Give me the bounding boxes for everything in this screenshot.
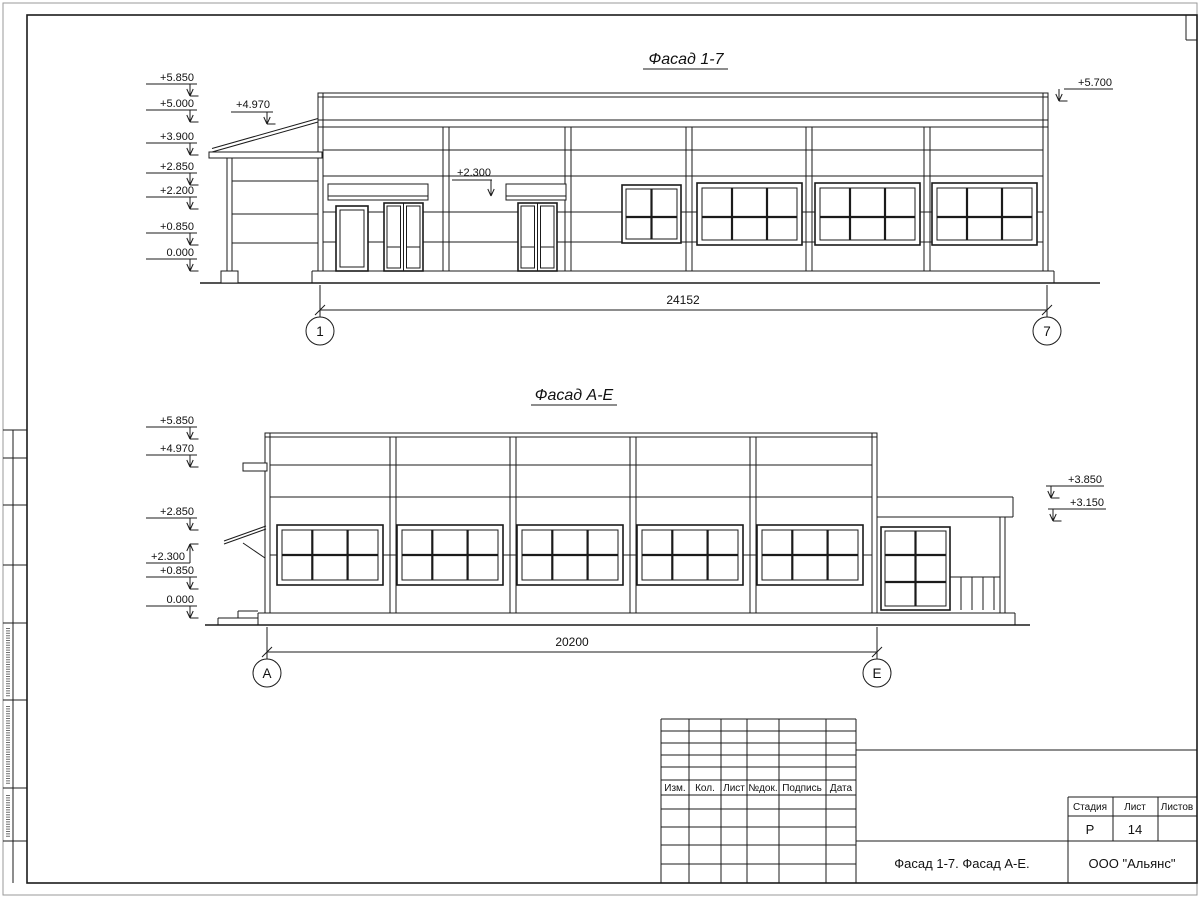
porch-elevation-mark: +4.970 (236, 99, 270, 111)
stage-value: Р (1086, 822, 1095, 837)
window (637, 525, 743, 585)
elevation-mark: +5.850 (160, 72, 194, 84)
facade-a-e-title: Фасад А-Е (535, 387, 614, 404)
facade-a-e: Фасад А-Е (146, 387, 1106, 687)
title-block: Изм. Кол. Лист №док. Подпись Дата Стадия… (661, 719, 1197, 883)
axis-bubble-1: 1 (316, 324, 324, 339)
elevation-marks-a-e: +5.850 +4.970 +2.850 +2.300 +0.850 0.000 (146, 415, 199, 618)
elevation-mark: +4.970 (160, 443, 194, 455)
side-stamp (3, 430, 27, 883)
axis-bubble-e: Е (872, 666, 881, 681)
organization-name: ООО "Альянс" (1089, 856, 1176, 871)
tb-col-data: Дата (830, 783, 853, 794)
window (277, 525, 383, 585)
steps (218, 611, 258, 625)
sheet-label: Лист (1124, 802, 1146, 813)
elevation-mark: +2.850 (160, 506, 194, 518)
tb-col-podpis: Подпись (782, 783, 822, 794)
dimension-value: 20200 (555, 635, 589, 649)
elevation-mark: +0.850 (160, 221, 194, 233)
tb-col-ndok: №док. (748, 783, 777, 794)
tb-col-list: Лист (723, 783, 745, 794)
facade-1-7-title: Фасад 1-7 (649, 51, 725, 68)
dimension-value: 24152 (666, 293, 700, 307)
dimension-1-7: 24152 1 7 (306, 285, 1061, 345)
window (815, 183, 920, 245)
elevation-mark: +2.200 (160, 185, 194, 197)
window (517, 525, 623, 585)
elevation-mark: +5.000 (160, 98, 194, 110)
elevation-mark: +2.300 (151, 551, 185, 563)
window (622, 185, 681, 243)
drawing-sheet: Фасад 1-7 +5.850 +5.000 + (0, 0, 1200, 900)
canopy-elevation-mark: +2.300 (457, 167, 491, 179)
axis-bubble-a: А (262, 666, 271, 681)
elevation-marks-1-7: +5.850 +5.000 +3.900 +2.850 +2.200 +0.85… (146, 72, 199, 271)
elevation-mark: +3.900 (160, 131, 194, 143)
window (397, 525, 503, 585)
glazed-door (518, 203, 557, 271)
porch (209, 119, 322, 284)
window (932, 183, 1037, 245)
door-canopy (328, 184, 428, 200)
parapet-elevation-mark: +5.700 (1078, 77, 1112, 89)
dimension-a-e: 20200 А Е (253, 627, 891, 687)
elevation-mark: +5.850 (160, 415, 194, 427)
annex-elevation-mark: +3.150 (1070, 497, 1104, 509)
drawing-name: Фасад 1-7. Фасад А-Е. (894, 856, 1029, 871)
window (697, 183, 802, 245)
door-canopy (506, 184, 566, 200)
glazed-door (384, 203, 423, 271)
tb-col-izm: Изм. (664, 783, 685, 794)
axis-bubble-7: 7 (1043, 324, 1051, 339)
facade-1-7: Фасад 1-7 +5.850 +5.000 + (146, 51, 1113, 345)
side-canopy (224, 526, 266, 558)
window (881, 527, 950, 610)
annex-elevation-mark: +3.850 (1068, 474, 1102, 486)
window (757, 525, 863, 585)
tb-col-kol: Кол. (695, 783, 715, 794)
sheets-label: Листов (1161, 802, 1194, 813)
elevation-mark: 0.000 (166, 594, 194, 606)
elevation-mark: 0.000 (166, 247, 194, 259)
sheet-value: 14 (1128, 822, 1142, 837)
elevation-mark: +2.850 (160, 161, 194, 173)
elevation-mark: +0.850 (160, 565, 194, 577)
entrance-door (336, 206, 368, 271)
stage-label: Стадия (1073, 802, 1107, 813)
